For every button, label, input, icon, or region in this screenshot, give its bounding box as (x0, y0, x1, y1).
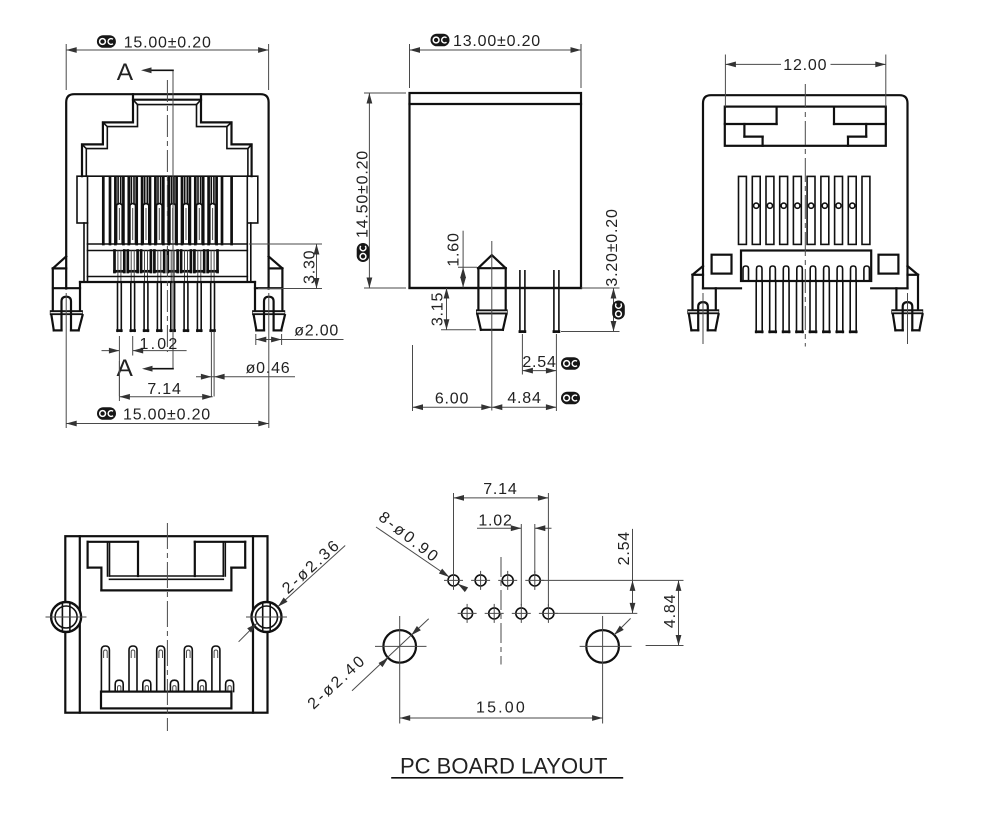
svg-text:ø0.46: ø0.46 (246, 360, 291, 377)
svg-text:2.54: 2.54 (522, 354, 556, 371)
svg-text:ø2.00: ø2.00 (294, 323, 339, 340)
svg-text:2.54: 2.54 (616, 531, 633, 565)
svg-text:14.50±0.20: 14.50±0.20 (355, 150, 372, 238)
svg-text:1.60: 1.60 (446, 232, 463, 266)
svg-text:4.84: 4.84 (507, 390, 541, 407)
svg-text:PC BOARD LAYOUT: PC BOARD LAYOUT (400, 754, 607, 779)
svg-text:3.20±0.20: 3.20±0.20 (604, 208, 621, 286)
svg-text:15.00±0.20: 15.00±0.20 (123, 407, 211, 424)
svg-text:A: A (117, 59, 134, 86)
svg-text:3.15: 3.15 (430, 292, 447, 326)
svg-text:6.00: 6.00 (435, 391, 469, 408)
svg-text:3.30: 3.30 (302, 250, 319, 284)
svg-text:1.02: 1.02 (478, 513, 512, 530)
svg-text:12.00: 12.00 (783, 57, 827, 74)
svg-text:7.14: 7.14 (483, 481, 517, 498)
svg-text:1.02: 1.02 (140, 336, 180, 353)
svg-text:4.84: 4.84 (662, 594, 679, 628)
svg-text:15.00: 15.00 (476, 700, 527, 717)
svg-text:13.00±0.20: 13.00±0.20 (453, 33, 541, 50)
svg-text:7.14: 7.14 (147, 381, 181, 398)
svg-text:15.00±0.20: 15.00±0.20 (124, 34, 212, 51)
